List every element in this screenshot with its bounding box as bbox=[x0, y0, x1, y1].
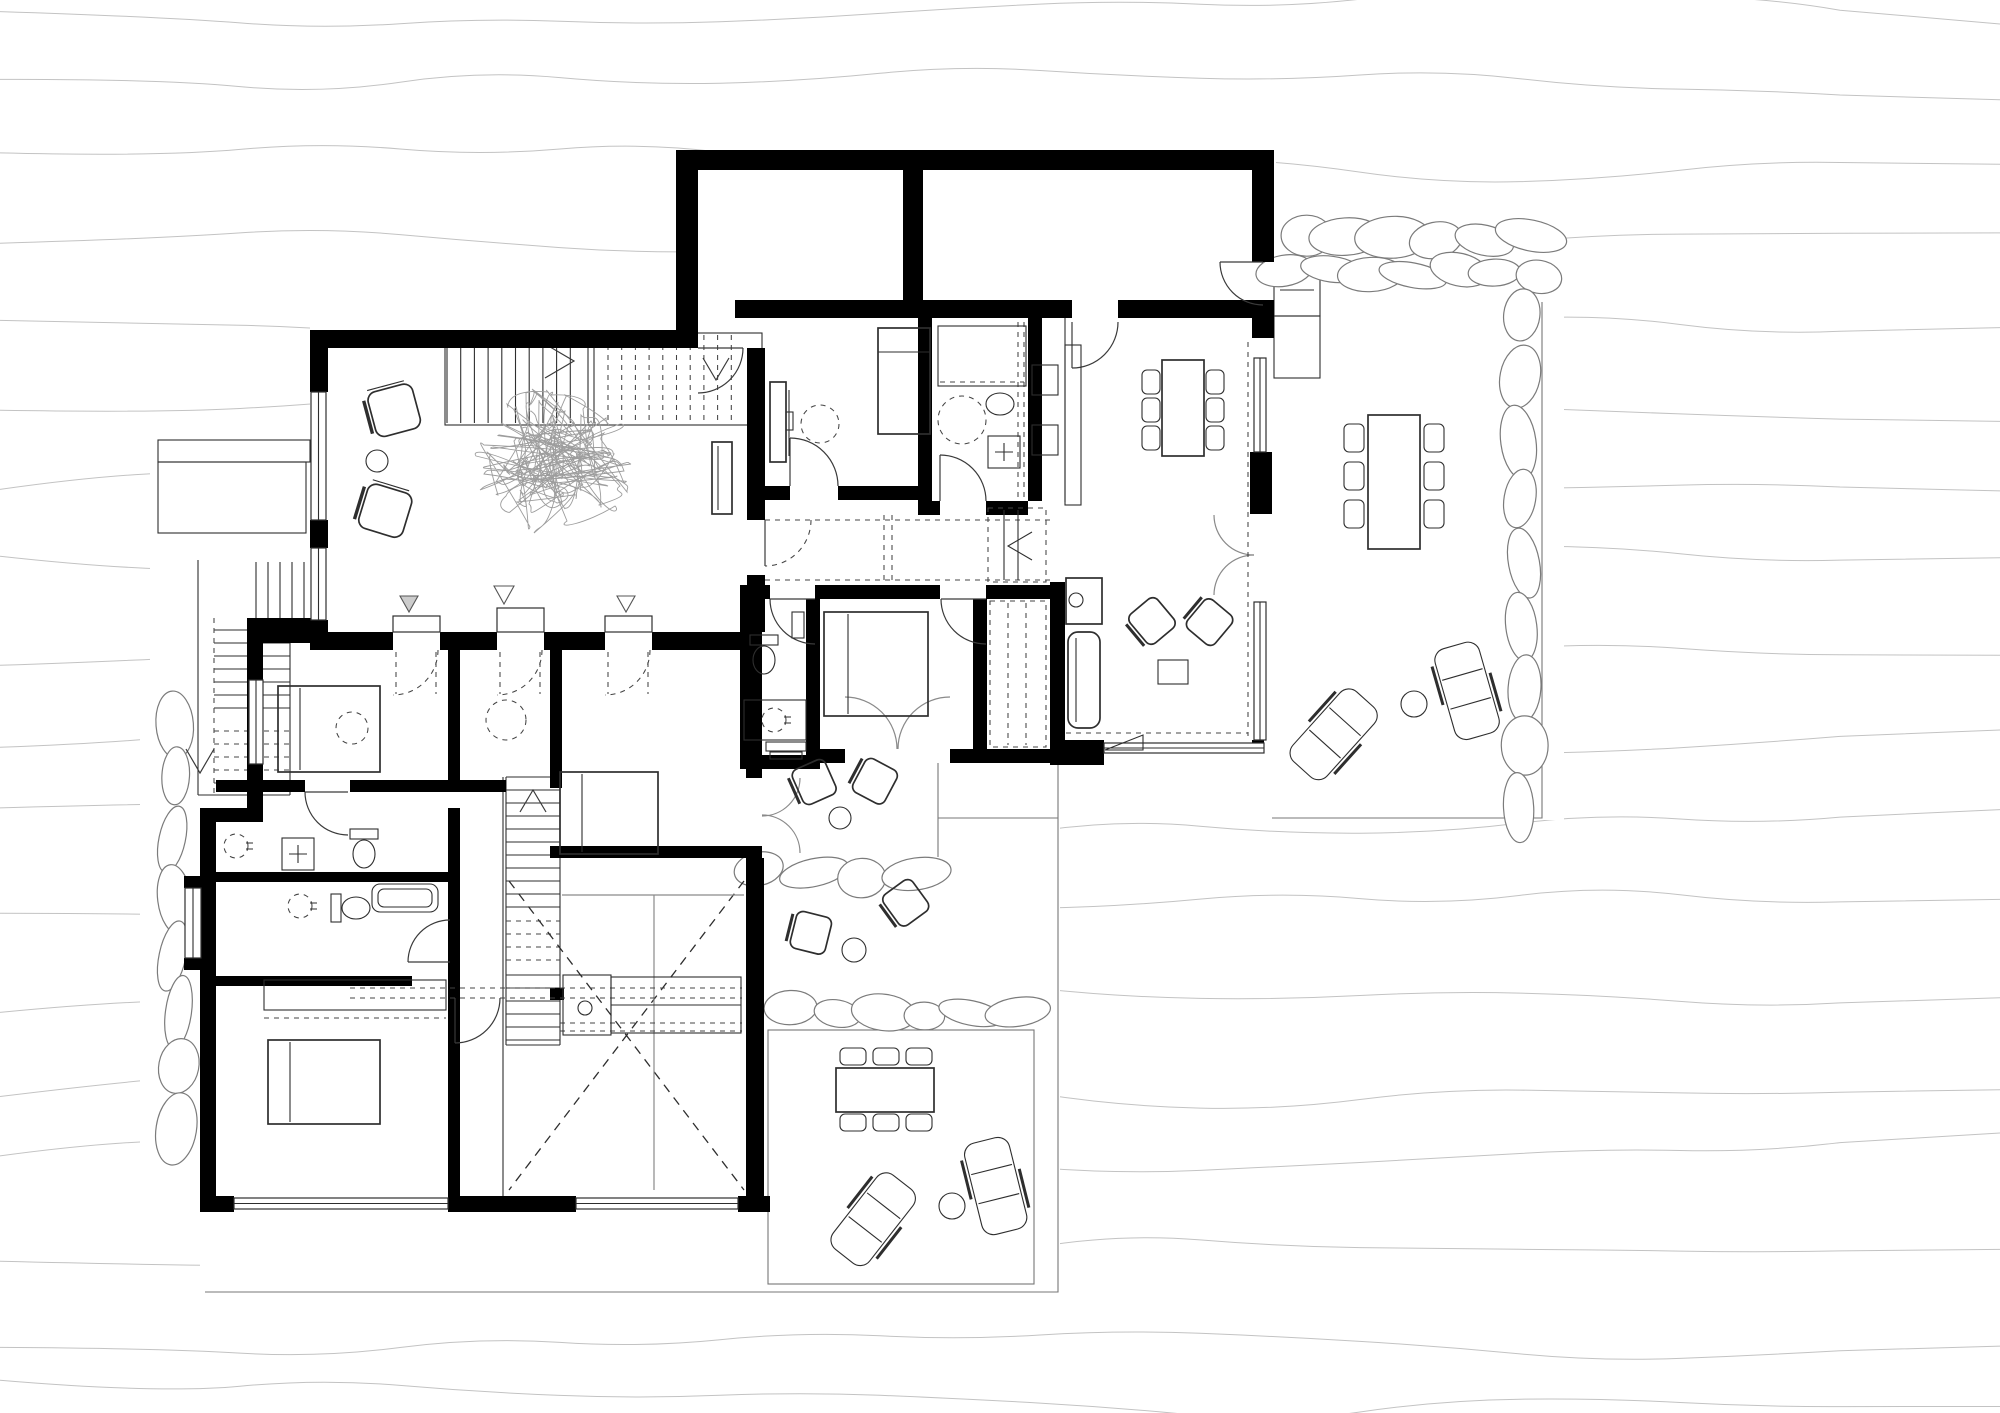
floor-plan-drawing bbox=[0, 0, 2000, 1413]
site-ground-mask bbox=[140, 150, 1564, 1294]
floor-plan-sheet bbox=[0, 0, 2000, 1413]
